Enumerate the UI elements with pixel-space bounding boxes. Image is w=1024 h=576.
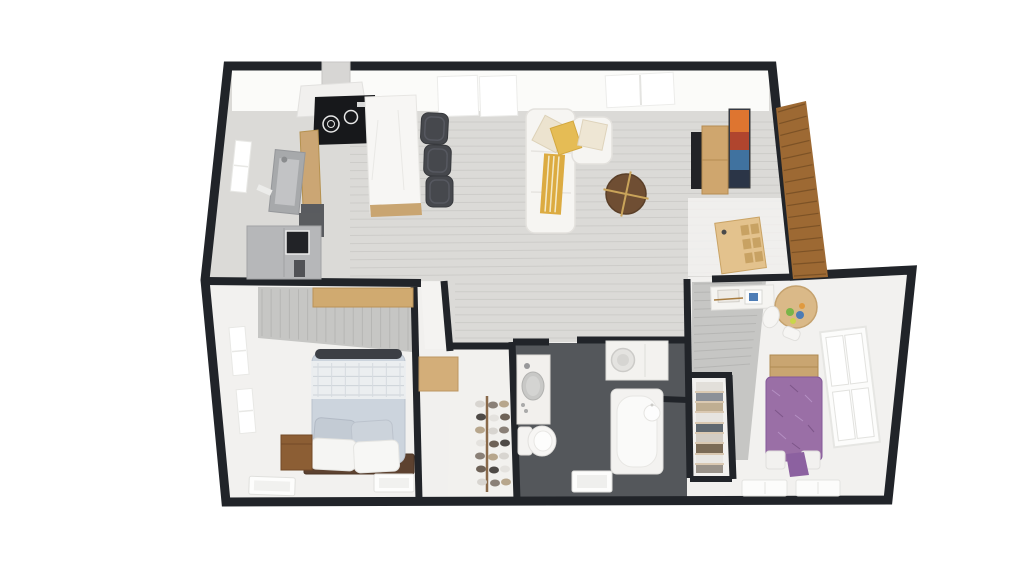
floor-vent-b1a bbox=[249, 476, 296, 496]
shoe bbox=[489, 415, 499, 422]
shoe bbox=[475, 453, 485, 460]
bed1-pillow-white-1 bbox=[310, 438, 357, 471]
clothes-stack bbox=[696, 434, 723, 442]
hall-cabinet bbox=[419, 357, 458, 391]
shoe bbox=[476, 414, 486, 421]
bed2-footboard-white-1 bbox=[766, 451, 785, 469]
pillow-chaise bbox=[578, 120, 608, 151]
floor-vent-b2b bbox=[796, 480, 840, 496]
shoe bbox=[501, 479, 511, 486]
vent-b1a-inner bbox=[254, 480, 290, 491]
upper-gray-cabinet bbox=[299, 213, 321, 227]
island-wood-base bbox=[370, 203, 422, 217]
floor-plan-screenshot bbox=[0, 0, 1024, 576]
clothes-stack bbox=[696, 424, 723, 432]
shoe bbox=[499, 453, 509, 460]
bed1-duvet-trim bbox=[315, 349, 402, 359]
table-toy-green bbox=[786, 308, 794, 316]
skylight-window-1 bbox=[437, 75, 478, 116]
wall-kitchen-bedroom1 bbox=[205, 281, 421, 283]
shoe bbox=[490, 480, 500, 487]
clothes-stack bbox=[696, 403, 723, 411]
vanity-soap-1 bbox=[521, 403, 525, 407]
clothes-stack bbox=[696, 413, 723, 422]
vent-bath-inner bbox=[577, 475, 607, 488]
fridge-handle bbox=[294, 260, 305, 277]
throw-blanket bbox=[540, 153, 565, 214]
nightstand bbox=[281, 435, 312, 470]
wall-painting bbox=[729, 109, 750, 188]
table-toy-lime bbox=[790, 318, 796, 324]
bedroom1-window-b bbox=[236, 388, 256, 433]
shoe bbox=[476, 440, 486, 447]
linen-closet-shelves bbox=[695, 382, 724, 473]
cooktop-label bbox=[357, 102, 366, 107]
door-panel-5 bbox=[744, 252, 753, 263]
vanity-soap-2 bbox=[524, 409, 528, 413]
painting-band-red bbox=[730, 132, 749, 150]
bedroom1-shelf bbox=[313, 288, 413, 307]
wall-bath-right bbox=[687, 279, 690, 478]
vanity-sink-inner bbox=[526, 376, 540, 396]
fridge-window bbox=[286, 231, 309, 254]
kitchen-island bbox=[365, 95, 421, 213]
skylight-window-2 bbox=[479, 75, 517, 116]
shoe bbox=[499, 427, 509, 434]
shoe bbox=[499, 401, 509, 408]
bed1-pillow-white-2 bbox=[353, 440, 400, 473]
door-panel-3 bbox=[742, 239, 751, 250]
clothes-stack bbox=[696, 455, 723, 463]
front-door bbox=[715, 217, 767, 274]
desk-books bbox=[718, 290, 739, 303]
shoe bbox=[500, 414, 510, 421]
wall-bedroom1-right bbox=[414, 287, 419, 500]
round-table bbox=[775, 286, 817, 328]
desk-laptop-screen bbox=[749, 293, 758, 301]
floor-plan-canvas bbox=[0, 0, 1024, 576]
clothes-stack bbox=[696, 444, 723, 453]
shoe bbox=[488, 454, 498, 461]
shoe bbox=[489, 441, 499, 448]
shoe bbox=[475, 427, 485, 434]
toilet-seat bbox=[534, 431, 552, 451]
bar-chair-3 bbox=[426, 176, 453, 207]
floor-vent-b1b bbox=[374, 474, 414, 492]
painting-band-dark bbox=[730, 170, 749, 187]
wall-linen-closet-right bbox=[729, 375, 733, 479]
pendant-light-cap bbox=[651, 404, 654, 407]
shoe bbox=[500, 440, 510, 447]
clothes-stack bbox=[696, 393, 723, 401]
door-panel-6 bbox=[754, 251, 763, 262]
shoe bbox=[488, 428, 498, 435]
wall-bedroom2-top bbox=[712, 277, 795, 279]
table-toy-blue bbox=[796, 311, 804, 319]
tv bbox=[691, 132, 702, 189]
shoe bbox=[475, 401, 485, 408]
table-toy-orange bbox=[799, 303, 805, 309]
door-panel-1 bbox=[740, 225, 749, 236]
bar-chair-1 bbox=[420, 112, 449, 144]
floor-vent-bath bbox=[572, 471, 612, 492]
shoe bbox=[500, 466, 510, 473]
bar-chair-2 bbox=[423, 145, 451, 177]
painting-band-orange bbox=[730, 110, 749, 132]
shoe bbox=[477, 479, 487, 486]
bed2-purple-duvet bbox=[766, 377, 822, 461]
clothes-stack bbox=[696, 382, 723, 391]
painting-band-blue bbox=[730, 150, 749, 170]
vanity-faucet bbox=[524, 363, 530, 369]
kitchen-sink bbox=[269, 150, 305, 215]
vent-b1b-inner bbox=[379, 478, 409, 488]
wall-bath-left bbox=[512, 342, 517, 500]
shoe bbox=[488, 402, 498, 409]
door-panel-4 bbox=[752, 237, 761, 248]
skylight-3-mullion bbox=[640, 75, 641, 105]
shoe bbox=[489, 467, 499, 474]
door-panel-2 bbox=[750, 223, 759, 234]
washer-drum-inner bbox=[617, 354, 629, 366]
pendant-light bbox=[644, 405, 660, 421]
shoe bbox=[476, 466, 486, 473]
floor-vent-b2a bbox=[742, 480, 787, 496]
clothes-stack bbox=[696, 465, 723, 473]
